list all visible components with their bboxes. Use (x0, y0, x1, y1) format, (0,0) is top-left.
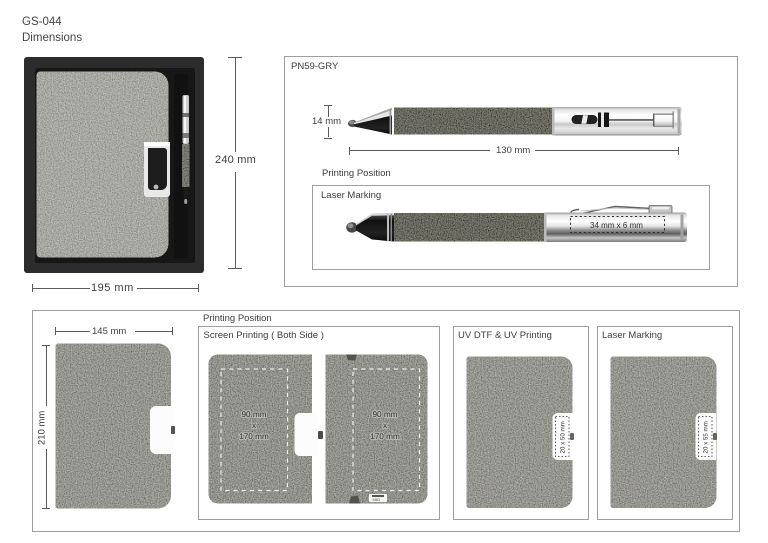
svg-text:x: x (252, 421, 256, 430)
svg-text:170 mm: 170 mm (370, 432, 400, 441)
svg-text:210 mm: 210 mm (37, 411, 48, 445)
svg-text:170 mm: 170 mm (239, 432, 269, 441)
svg-text:20 x 50 mm: 20 x 50 mm (560, 421, 567, 453)
svg-text:x: x (383, 421, 387, 430)
svg-text:90 mm: 90 mm (372, 410, 397, 419)
svg-text:90 mm: 90 mm (241, 410, 266, 419)
svg-text:20 x 55 mm: 20 x 55 mm (703, 421, 710, 453)
